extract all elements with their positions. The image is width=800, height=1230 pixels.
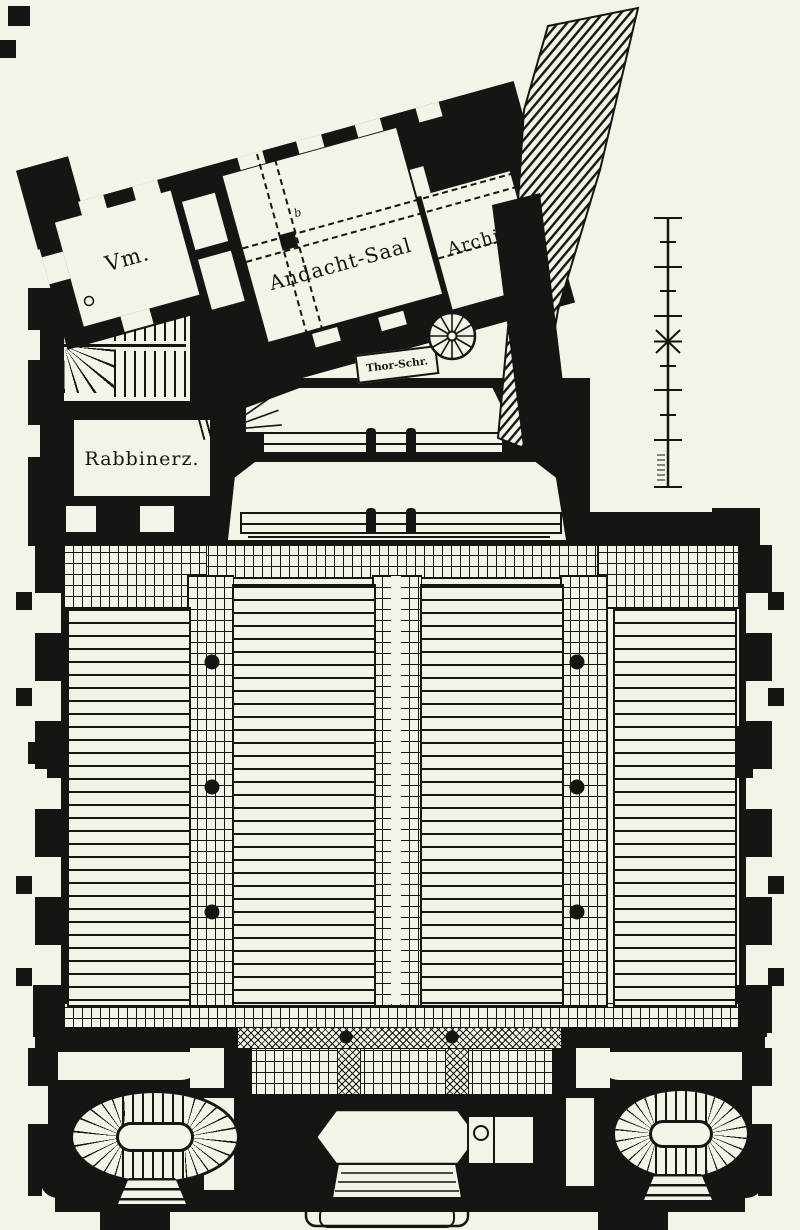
rail-baluster [406,428,416,454]
edge-mark [8,6,30,26]
window-gap [140,506,174,532]
pew-bank-center-east [420,584,564,1007]
hall-east-wall [739,545,772,1035]
room-rabbinerz: Rabbinerz. [72,418,212,500]
torah-shrine-label: Thor-Schr. [357,347,437,381]
scale-bar-caption-marks [657,455,665,480]
door-gap [28,1086,48,1124]
corridor-gap [58,1052,206,1080]
door-gap [190,1048,224,1088]
pew-bank-east [613,607,737,1007]
annex-south-wall [28,496,230,546]
aisle-center-walkway [391,576,401,1004]
buttress-tick [16,592,32,610]
edge-mark [0,40,16,58]
window-gap [28,425,40,457]
stair-newel [116,1122,194,1152]
facade-pad [598,1206,668,1230]
vestibule-threshold-band [237,1027,562,1050]
room-vm: Vm. [55,191,199,327]
rail-baluster [366,428,376,454]
corridor-gap [566,1098,594,1186]
hall-west-wall [35,545,68,1035]
pew-bank-west [67,607,191,1007]
vestibule-pier-strip [445,1048,469,1096]
rail-baluster [366,508,376,534]
almemor-upper-rail [262,432,504,454]
buttress-tick [768,688,784,706]
floor-plan: Rabbinerz. [0,0,800,1230]
almemor-lower-rail [240,512,562,534]
aisle-east [560,575,608,1007]
window-gap [66,506,96,532]
vestibule-pier-strip [337,1048,361,1096]
entrance-block-walls [225,1094,575,1206]
scale-bar-star [654,330,682,353]
scale-bar [654,218,682,487]
hall-ne-tile-area [597,545,739,609]
facade-pad [100,1206,170,1230]
platform-step-line [248,536,550,538]
door-gap [576,1048,610,1088]
buttress-tick [16,968,32,986]
se-stair-exit-steps [644,1174,712,1200]
stair-newel [649,1120,713,1148]
corridor-gap [594,1052,742,1080]
vestibule-tiles [237,1048,562,1096]
stair-flight-lower [114,351,186,397]
buttress-tick [16,688,32,706]
door-gap [752,1086,772,1124]
pew-bank-center-west [232,584,376,1007]
se-oval-staircase [612,1088,750,1180]
window-gap [312,327,341,347]
hall-nw-tile-area [63,545,207,609]
sw-oval-staircase [70,1090,240,1184]
buttress-tick [768,592,784,610]
almemor-upper-platform [246,388,514,432]
buttress-tick [16,876,32,894]
sw-stair-exit-steps [118,1178,186,1204]
wing-corridor-cell [198,251,245,310]
aisle-west [187,575,234,1007]
buttress-tick [768,876,784,894]
room-vm-label: Vm. [55,191,199,327]
rail-baluster [406,508,416,534]
window-gap [28,330,40,360]
wing-corridor-cell [182,193,228,250]
window-gap [378,311,407,331]
buttress-tick [768,968,784,986]
window-gap [415,102,442,123]
room-rabbinerz-label: Rabbinerz. [74,420,210,498]
